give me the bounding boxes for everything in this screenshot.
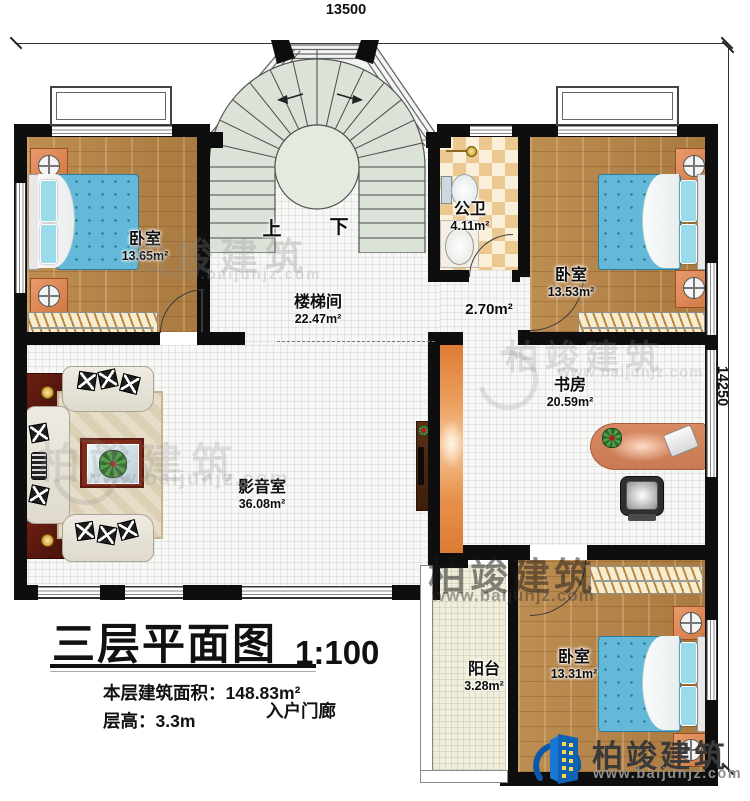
window [125, 586, 183, 599]
watermark: www.baijunjz.com [160, 266, 321, 283]
window [706, 263, 717, 335]
porch-label: 入户门廊 [266, 698, 336, 723]
room-name: 公卫 [425, 200, 515, 219]
room-label-bedroom3: 卧室 13.31m² [529, 648, 619, 682]
room-label-corridor: 2.70m² [444, 301, 534, 319]
door-leaf [201, 289, 203, 332]
wall-segment [14, 585, 38, 600]
room-name: 阳台 [439, 660, 529, 679]
cushion-icon [97, 525, 118, 546]
floor-height-value: 3.3m [156, 711, 196, 731]
watermark: www.baijunjz.com [558, 364, 703, 381]
nightstand [30, 278, 68, 316]
wall-segment [14, 332, 160, 345]
floor-height-line: 层高：3.3m [103, 708, 195, 733]
towel-ring-icon [466, 146, 477, 157]
lamp-icon [38, 285, 60, 307]
floor-area-label: 本层建筑面积： [103, 683, 226, 703]
room-area: 20.59m² [525, 395, 615, 410]
pillow [680, 686, 697, 726]
monitor-icon [626, 481, 658, 510]
nightstand [673, 606, 709, 640]
cushion-icon [77, 371, 97, 391]
window [242, 586, 392, 599]
brand-url: www.baijunjz.com [593, 766, 742, 782]
wall-segment [100, 585, 125, 600]
plan-title: 三层平面图 [52, 610, 277, 672]
wall-segment [428, 270, 469, 282]
room-label-bedroom2: 卧室 13.53m² [526, 266, 616, 300]
bay-window-frame-inner [562, 92, 673, 120]
pillow [680, 642, 697, 684]
hallway-wood-strip [440, 345, 463, 555]
room-name: 楼梯间 [273, 293, 363, 312]
window [706, 350, 717, 477]
title-underline-thin [50, 671, 316, 672]
room-area: 36.08m² [217, 497, 307, 512]
cushion-icon [97, 368, 118, 389]
towel-bar-icon [446, 150, 468, 152]
title-underline [50, 664, 316, 668]
bed-sheet [642, 174, 679, 268]
chair-base [628, 514, 656, 521]
room-area: 3.28m² [439, 679, 529, 694]
table-knob-icon [41, 534, 54, 547]
down-text: 下 [327, 217, 351, 240]
brand-logo: 柏竣建筑 www.baijunjz.com [528, 728, 738, 790]
lamp-icon [683, 277, 705, 299]
window [470, 125, 512, 136]
spiral-staircase [189, 38, 451, 253]
watermark: www.baijunjz.com [432, 586, 595, 606]
bay-window-frame-inner [56, 92, 166, 120]
cushion-icon [75, 521, 95, 541]
table-knob-icon [41, 386, 54, 399]
dimension-top-label: 13500 [319, 2, 373, 18]
window [558, 125, 677, 136]
room-label-study: 书房 20.59m² [525, 376, 615, 410]
room-name: 卧室 [529, 648, 619, 667]
room-name: 卧室 [526, 266, 616, 285]
window [706, 620, 717, 700]
title-block: 三层平面图 1:100 [52, 610, 392, 672]
desk-plant-icon [602, 428, 622, 448]
wardrobe [590, 566, 703, 594]
room-label-bathroom: 公卫 4.11m² [425, 200, 515, 234]
bed-sheet [642, 636, 679, 730]
window [15, 183, 26, 293]
pillow [40, 224, 57, 264]
stairs-down-label: 下 [327, 217, 351, 240]
room-label-stairwell: 楼梯间 22.47m² [273, 293, 363, 327]
lamp-icon [680, 612, 702, 634]
pillow [680, 180, 697, 222]
wall-segment [183, 585, 242, 600]
pillow [680, 224, 697, 264]
floor-height-label: 层高： [103, 711, 156, 731]
wall-segment [587, 545, 718, 560]
tv-icon [418, 447, 424, 485]
room-area: 13.31m² [529, 667, 619, 682]
floor-plan-page: 13500 14250 [0, 0, 750, 801]
pillow [40, 180, 57, 222]
room-area: 22.47m² [273, 312, 363, 327]
window [38, 586, 100, 599]
window [52, 125, 172, 136]
brand-logo-icon [528, 728, 590, 786]
wall-segment [518, 124, 530, 277]
staircase-drawing [189, 38, 451, 253]
room-area: 13.53m² [526, 285, 616, 300]
wall-segment [203, 332, 245, 345]
room-area: 2.70m² [444, 301, 534, 319]
room-area: 4.11m² [425, 219, 515, 234]
room-label-balcony: 阳台 3.28m² [439, 660, 529, 694]
balcony-railing [420, 770, 508, 783]
beam-dashed-line [277, 341, 435, 342]
